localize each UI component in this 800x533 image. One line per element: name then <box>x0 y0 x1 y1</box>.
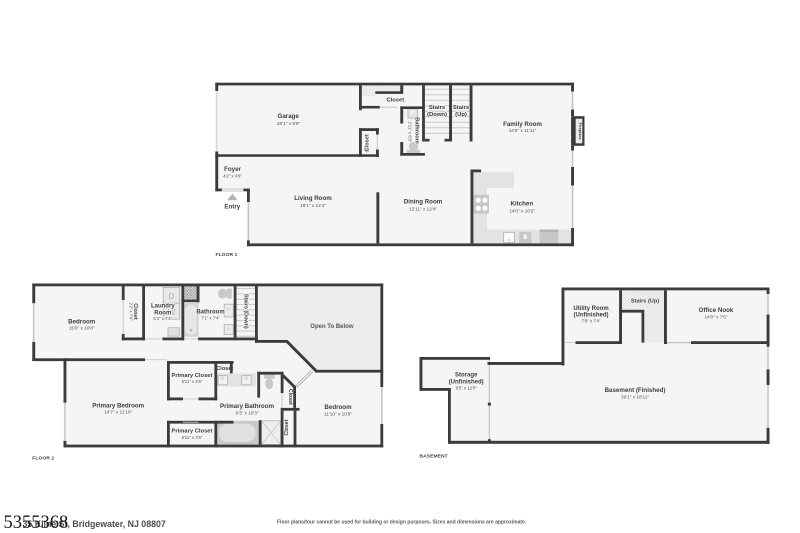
svg-text:Primary Bathroom: Primary Bathroom <box>220 403 274 410</box>
svg-text:5'11" x 3'6": 5'11" x 3'6" <box>182 435 203 440</box>
svg-text:BASEMENT: BASEMENT <box>420 453 448 459</box>
svg-text:Bathroom: Bathroom <box>413 117 419 143</box>
svg-text:2'2" x 7'4": 2'2" x 7'4" <box>128 302 133 321</box>
svg-text:Stairs (Up): Stairs (Up) <box>631 299 659 305</box>
svg-text:Foyer: Foyer <box>224 166 241 173</box>
svg-text:4'2" x 4'6": 4'2" x 4'6" <box>223 174 242 179</box>
svg-text:Laundry: Laundry <box>151 304 175 310</box>
svg-text:Primary Bedroom: Primary Bedroom <box>92 402 144 409</box>
svg-text:7'9" x 7'4": 7'9" x 7'4" <box>582 319 601 324</box>
svg-text:Closet: Closet <box>386 98 404 104</box>
svg-text:FLOOR 1: FLOOR 1 <box>216 252 238 258</box>
svg-text:Storage: Storage <box>455 373 478 379</box>
svg-text:Bedroom: Bedroom <box>68 319 96 326</box>
svg-text:Closet: Closet <box>284 419 290 435</box>
svg-text:D: D <box>169 292 175 301</box>
svg-text:Basement (Finished): Basement (Finished) <box>605 387 666 394</box>
svg-text:Dining Room: Dining Room <box>404 198 443 205</box>
svg-text:Family Room: Family Room <box>503 121 542 128</box>
svg-text:14'6" x 11'11": 14'6" x 11'11" <box>509 128 537 133</box>
svg-text:20'1" x 9'9": 20'1" x 9'9" <box>277 121 300 126</box>
svg-text:39'1" x 18'11": 39'1" x 18'11" <box>621 395 649 400</box>
svg-text:18'1" x 12'4": 18'1" x 12'4" <box>300 203 326 208</box>
svg-text:5355368: 5355368 <box>4 513 69 533</box>
svg-text:Bathroom: Bathroom <box>196 309 224 315</box>
svg-text:5'4" x 7'4": 5'4" x 7'4" <box>153 316 172 321</box>
svg-text:Fireplace: Fireplace <box>578 123 583 141</box>
svg-text:Living Room: Living Room <box>294 195 332 202</box>
svg-text:9'5" x 12'0": 9'5" x 12'0" <box>456 385 478 390</box>
svg-text:2'11" x 6'9": 2'11" x 6'9" <box>408 122 413 143</box>
svg-text:Primary Closet: Primary Closet <box>172 429 213 435</box>
svg-text:Stairs: Stairs <box>429 105 446 111</box>
svg-text:Closet: Closet <box>216 366 233 372</box>
svg-text:Utility Room: Utility Room <box>573 306 608 312</box>
svg-text:15'0" x 10'8": 15'0" x 10'8" <box>69 326 95 331</box>
svg-text:Bedroom: Bedroom <box>324 404 352 411</box>
svg-text:Stairs (Down): Stairs (Down) <box>243 294 249 329</box>
svg-text:(Down): (Down) <box>427 112 447 118</box>
svg-text:5'11" x 4'6": 5'11" x 4'6" <box>182 379 203 384</box>
svg-text:7'1" x 7'4": 7'1" x 7'4" <box>201 316 220 321</box>
svg-text:Open To Below: Open To Below <box>310 324 354 330</box>
svg-text:14'0" x 10'2": 14'0" x 10'2" <box>509 208 535 213</box>
svg-text:Floor plans/tour cannot be use: Floor plans/tour cannot be used for buil… <box>277 519 527 525</box>
svg-text:Primary Closet: Primary Closet <box>172 373 213 379</box>
svg-text:Closet: Closet <box>365 134 371 151</box>
svg-text:FLOOR 2: FLOOR 2 <box>32 456 54 462</box>
svg-text:Kitchen: Kitchen <box>510 201 533 208</box>
svg-text:11'10" x 10'9": 11'10" x 10'9" <box>324 411 352 416</box>
svg-text:Garage: Garage <box>278 113 300 120</box>
svg-text:Closet: Closet <box>287 389 293 405</box>
svg-text:14'0" x 7'6": 14'0" x 7'6" <box>704 314 727 319</box>
svg-text:Entry: Entry <box>224 204 240 211</box>
svg-text:12'11" x 12'4": 12'11" x 12'4" <box>409 206 437 211</box>
svg-text:(Up): (Up) <box>455 112 467 118</box>
svg-text:14'7" x 11'10": 14'7" x 11'10" <box>104 409 132 414</box>
svg-text:Office Nook: Office Nook <box>699 307 734 314</box>
svg-text:Stairs: Stairs <box>453 105 470 111</box>
svg-text:9'3" x 10'3": 9'3" x 10'3" <box>235 411 258 416</box>
